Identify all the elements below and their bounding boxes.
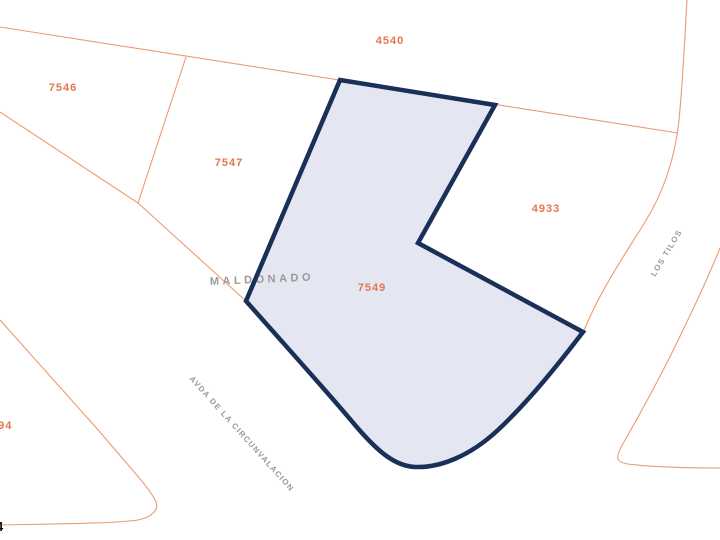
parcel-label-7546: 7546 xyxy=(49,82,77,94)
street-edge-los-tilos-west xyxy=(583,0,687,333)
parcel-label-294: 294 xyxy=(0,420,12,432)
street-label-los-tilos: LOS TILOS xyxy=(649,228,684,278)
boundary-divider-7546-7547 xyxy=(138,57,186,203)
corner-coordinate-label: 4 xyxy=(0,519,4,534)
parcel-294-boundary xyxy=(0,320,157,525)
street-edge-maldonado-north xyxy=(0,112,246,301)
cadastral-map-viewport[interactable]: MALDONADO AVDA DE LA CIRCUNVALACION LOS … xyxy=(0,0,720,540)
parcel-label-7547: 7547 xyxy=(215,157,243,169)
cadastral-map-canvas: MALDONADO AVDA DE LA CIRCUNVALACION LOS … xyxy=(0,0,720,540)
parcel-label-7549: 7549 xyxy=(358,282,386,294)
parcel-label-4540: 4540 xyxy=(376,35,404,47)
parcel-label-4933: 4933 xyxy=(532,203,560,215)
street-label-circunvalacion: AVDA DE LA CIRCUNVALACION xyxy=(188,374,297,493)
street-edge-los-tilos-east xyxy=(618,248,720,468)
